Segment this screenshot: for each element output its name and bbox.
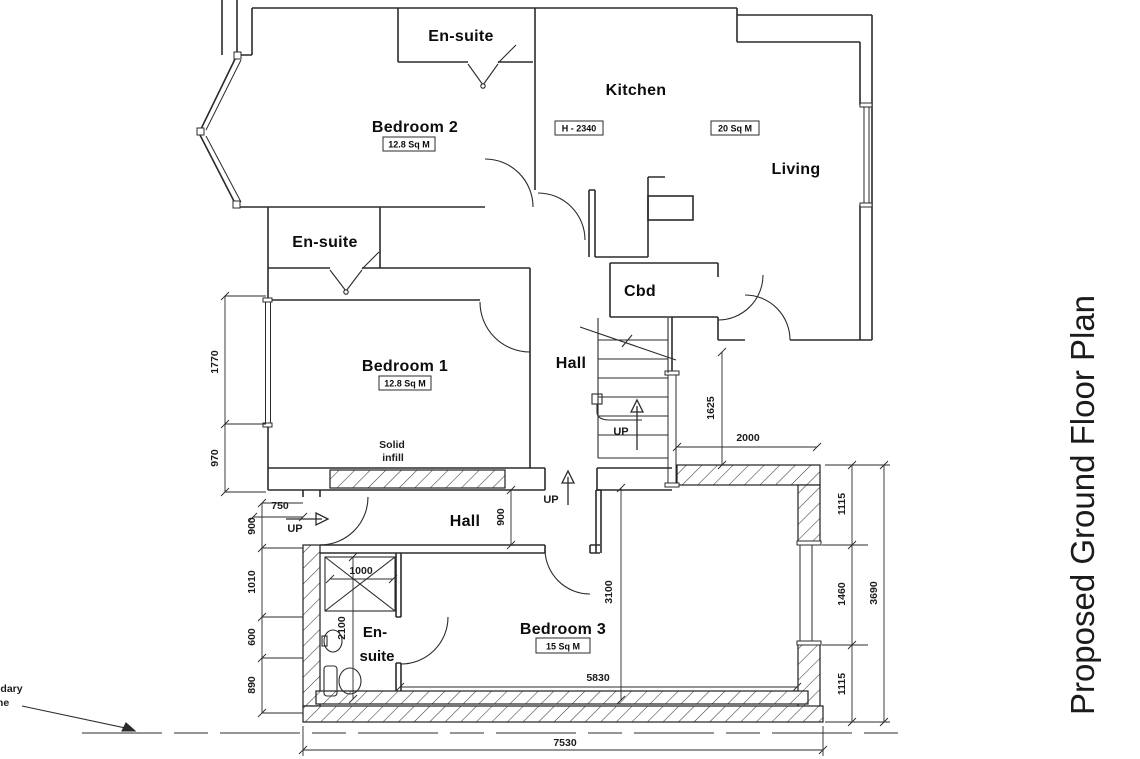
dim-1115-bottom: 1115 [836,673,848,695]
chimney-breast [648,177,665,257]
bedroom2-area: 12.8 Sq M [388,140,430,150]
solid-infill-note-2: infill [382,452,404,464]
dim-1000: 1000 [349,565,373,577]
bedroom1-area: 12.8 Sq M [384,379,426,389]
drawing-title: Proposed Ground Floor Plan [1064,295,1101,715]
living-area: 20 Sq M [718,124,752,134]
dim-7530: 7530 [553,737,577,749]
solid-infill-note-1: Solid [379,439,405,451]
kitchen-label: Kitchen [606,82,667,99]
ensuite-mid-walls [268,207,530,302]
boundary-note-2: ine [0,697,9,709]
dim-3690: 3690 [868,581,880,605]
boundary-note-1: ndary [0,683,23,695]
dim-970: 970 [209,449,221,467]
dim-1770: 1770 [209,350,221,374]
dim-3100: 3100 [603,580,615,604]
extension-walls [303,465,823,722]
dim-900-hall: 900 [495,508,507,526]
floor-plan-canvas: En-suite Bedroom 2 12.8 Sq M Kitchen H -… [0,0,1140,759]
bedroom3-door-arc [545,549,590,594]
kitchen-height-note: H - 2340 [562,124,597,134]
hall-up-label: UP [543,494,558,506]
stairs-up-label: UP [613,426,628,438]
bedroom3-label: Bedroom 3 [520,621,606,638]
living-label: Living [772,161,821,178]
bedroom3-area: 15 Sq M [546,642,580,652]
hall-upper-label: Hall [556,355,587,372]
solid-infill-wall [330,470,505,488]
newel-post [592,394,602,404]
stairs-up-arrow [631,400,643,450]
bedroom3-window [797,541,821,645]
ensuite-top-door-symbol [468,45,516,88]
bedroom1-door-arc [480,302,530,352]
cbd-walls [610,263,718,373]
dim-1115-top: 1115 [836,493,848,515]
ensuite-lower-label-1: En- [363,624,387,641]
dim-600: 600 [246,628,258,646]
cbd-door-arc [718,275,763,320]
bedroom2-door-arc [485,159,533,207]
stair-break-line [580,327,676,360]
label-boxes [379,121,759,653]
cbd-label: Cbd [624,283,656,300]
ensuite-mid-label: En-suite [292,234,358,251]
dim-2100: 2100 [336,616,348,640]
dim-2000: 2000 [736,432,760,444]
ensuite-lower-door-arc [401,617,448,664]
bedroom2-label: Bedroom 2 [372,119,458,136]
extension-west-wall [303,545,320,706]
dim-900-left: 900 [246,517,258,535]
floor-plan-page: En-suite Bedroom 2 12.8 Sq M Kitchen H -… [0,0,1140,759]
bedroom1-window [263,298,272,427]
extension-south-wall-outer [303,706,823,722]
ensuite-lower-label-2: suite [359,648,394,665]
living-window [860,103,872,207]
stair-treads [598,340,668,435]
dim-750: 750 [271,500,289,512]
extension-south-wall-inner [316,691,808,704]
dim-1460: 1460 [836,582,848,606]
extension-north-wall [677,465,820,485]
ensuite-top-label: En-suite [428,28,494,45]
up-arrows [286,400,643,525]
ensuite-mid-door-symbol [330,252,379,294]
dim-1625: 1625 [705,396,717,420]
entrance-up-label: UP [287,523,302,535]
hall-up-arrow [562,471,574,505]
hall-lower-label: Hall [450,513,481,530]
extension-east-wall-upper [798,485,820,543]
kitchen-door-arc [538,193,585,240]
bedroom1-label: Bedroom 1 [362,358,448,375]
entrance-door-arc [320,497,368,545]
dim-1010: 1010 [246,570,258,594]
boundary-arrow [22,706,135,731]
bay-window-posts [197,52,241,208]
dim-5830: 5830 [586,672,610,684]
dim-890: 890 [246,676,258,694]
living-door-arc [745,295,790,340]
text-layer: En-suite Bedroom 2 12.8 Sq M Kitchen H -… [0,28,1101,749]
